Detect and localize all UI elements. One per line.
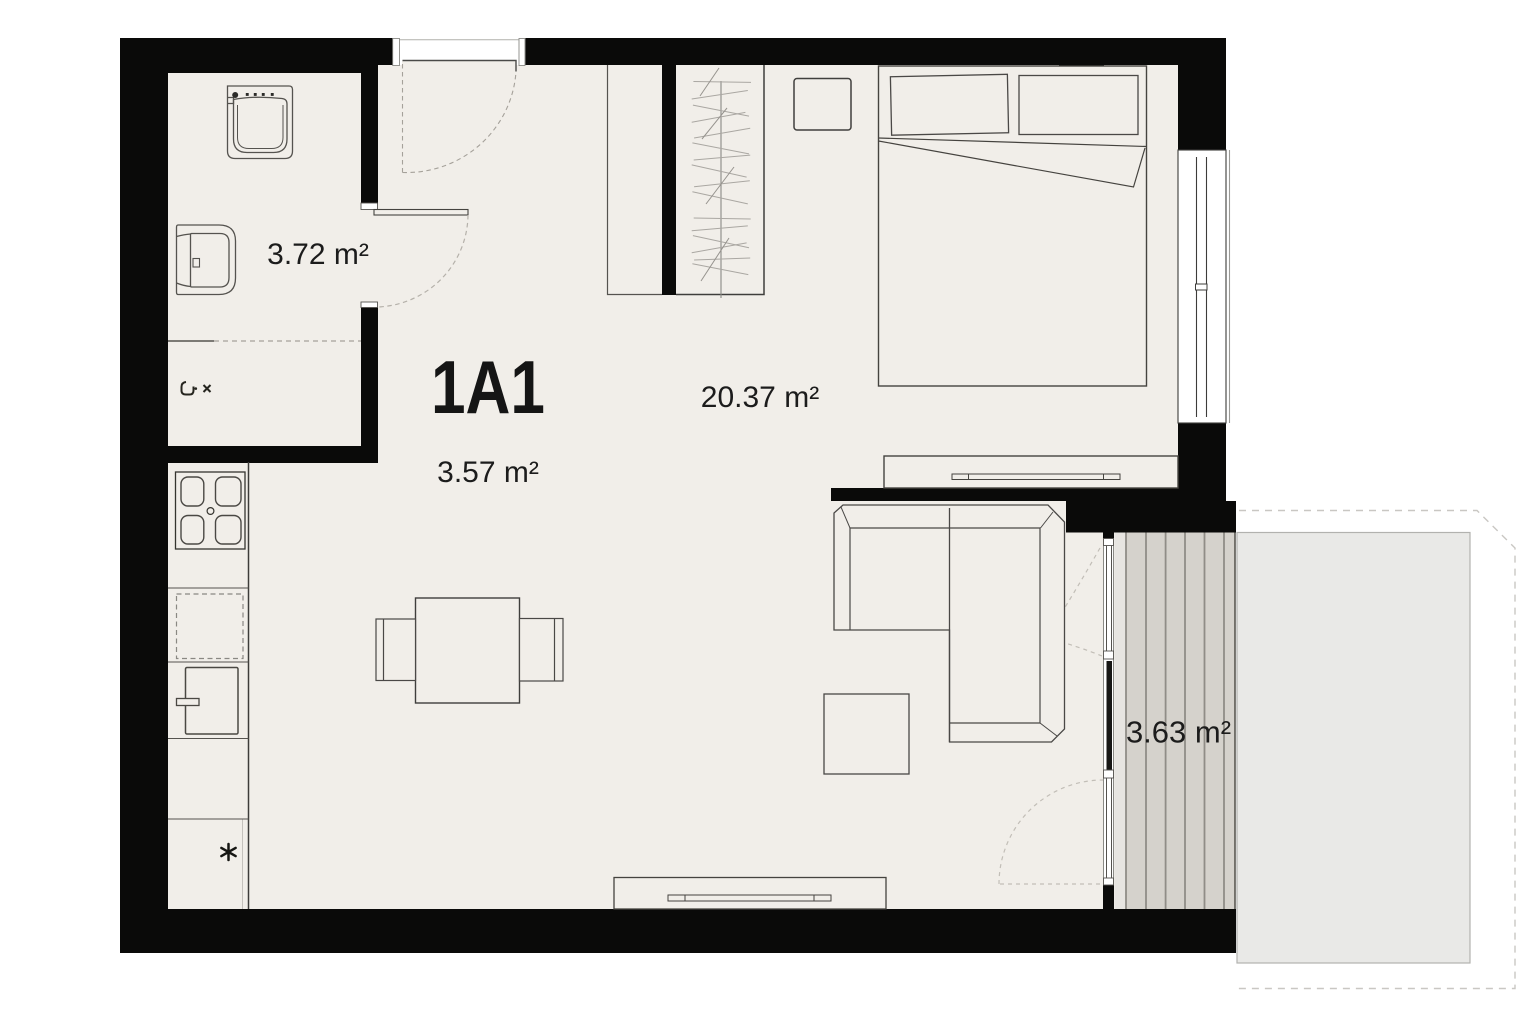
svg-text:3.63 m²: 3.63 m²: [1126, 715, 1231, 750]
svg-text:3.72 m²: 3.72 m²: [267, 238, 369, 271]
svg-text:20.37 m²: 20.37 m²: [701, 381, 819, 414]
svg-text:1A1: 1A1: [431, 345, 545, 429]
svg-text:3.57 m²: 3.57 m²: [437, 456, 539, 489]
